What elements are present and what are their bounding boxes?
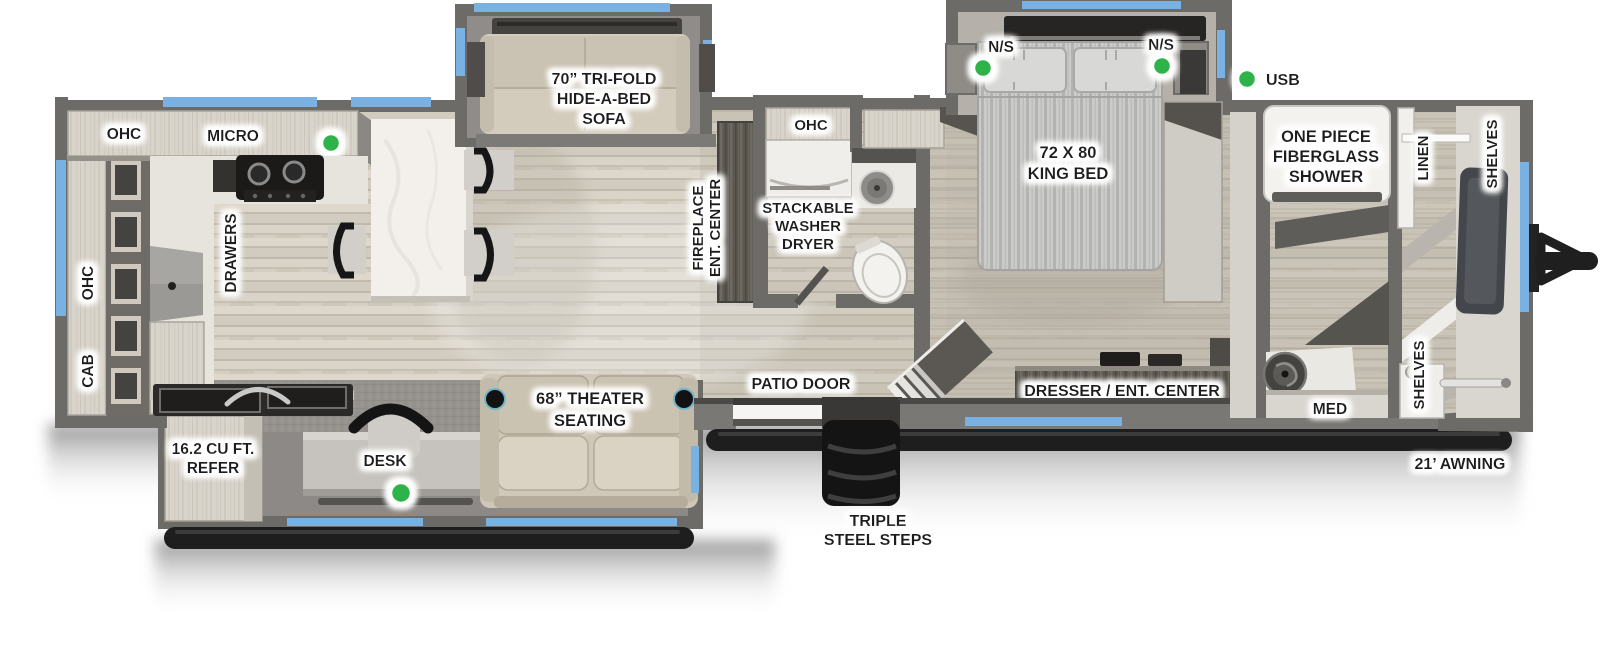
svg-text:N/S: N/S — [988, 39, 1014, 56]
svg-text:MICRO: MICRO — [207, 128, 259, 145]
svg-text:KING BED: KING BED — [1028, 165, 1109, 183]
svg-text:FIREPLACE: FIREPLACE — [690, 185, 707, 270]
svg-text:ONE PIECE: ONE PIECE — [1281, 128, 1371, 146]
svg-text:CAB: CAB — [80, 354, 97, 388]
svg-text:SHOWER: SHOWER — [1289, 168, 1363, 186]
svg-text:STEEL STEPS: STEEL STEPS — [824, 532, 933, 549]
svg-text:SHELVES: SHELVES — [1411, 341, 1428, 410]
svg-text:DRYER: DRYER — [782, 236, 834, 253]
svg-text:16.2 CU FT.: 16.2 CU FT. — [172, 441, 255, 458]
svg-text:OHC: OHC — [107, 126, 141, 143]
svg-text:PATIO DOOR: PATIO DOOR — [752, 376, 851, 393]
svg-text:SOFA: SOFA — [582, 111, 626, 128]
svg-text:SHELVES: SHELVES — [1484, 120, 1501, 189]
svg-text:72 X 80: 72 X 80 — [1040, 144, 1097, 162]
svg-text:21’ AWNING: 21’ AWNING — [1415, 456, 1506, 473]
svg-text:SEATING: SEATING — [554, 412, 626, 430]
svg-text:TRIPLE: TRIPLE — [850, 513, 907, 530]
svg-text:DRESSER / ENT. CENTER: DRESSER / ENT. CENTER — [1024, 383, 1220, 400]
svg-text:ENT. CENTER: ENT. CENTER — [707, 179, 724, 278]
svg-text:68” THEATER: 68” THEATER — [536, 390, 644, 408]
svg-text:MED: MED — [1313, 401, 1347, 418]
svg-text:HIDE-A-BED: HIDE-A-BED — [557, 91, 651, 108]
svg-text:70” TRI-FOLD: 70” TRI-FOLD — [552, 71, 657, 88]
svg-text:OHC: OHC — [794, 117, 828, 134]
svg-text:LINEN: LINEN — [1415, 136, 1432, 181]
svg-text:REFER: REFER — [187, 460, 240, 477]
svg-text:OHC: OHC — [80, 266, 97, 300]
svg-text:FIBERGLASS: FIBERGLASS — [1273, 148, 1379, 166]
svg-text:DRAWERS: DRAWERS — [223, 213, 240, 292]
svg-text:N/S: N/S — [1148, 37, 1174, 54]
svg-text:WASHER: WASHER — [775, 218, 841, 235]
svg-text:DESK: DESK — [363, 453, 407, 470]
svg-text:USB: USB — [1266, 72, 1300, 89]
svg-text:STACKABLE: STACKABLE — [762, 200, 853, 217]
